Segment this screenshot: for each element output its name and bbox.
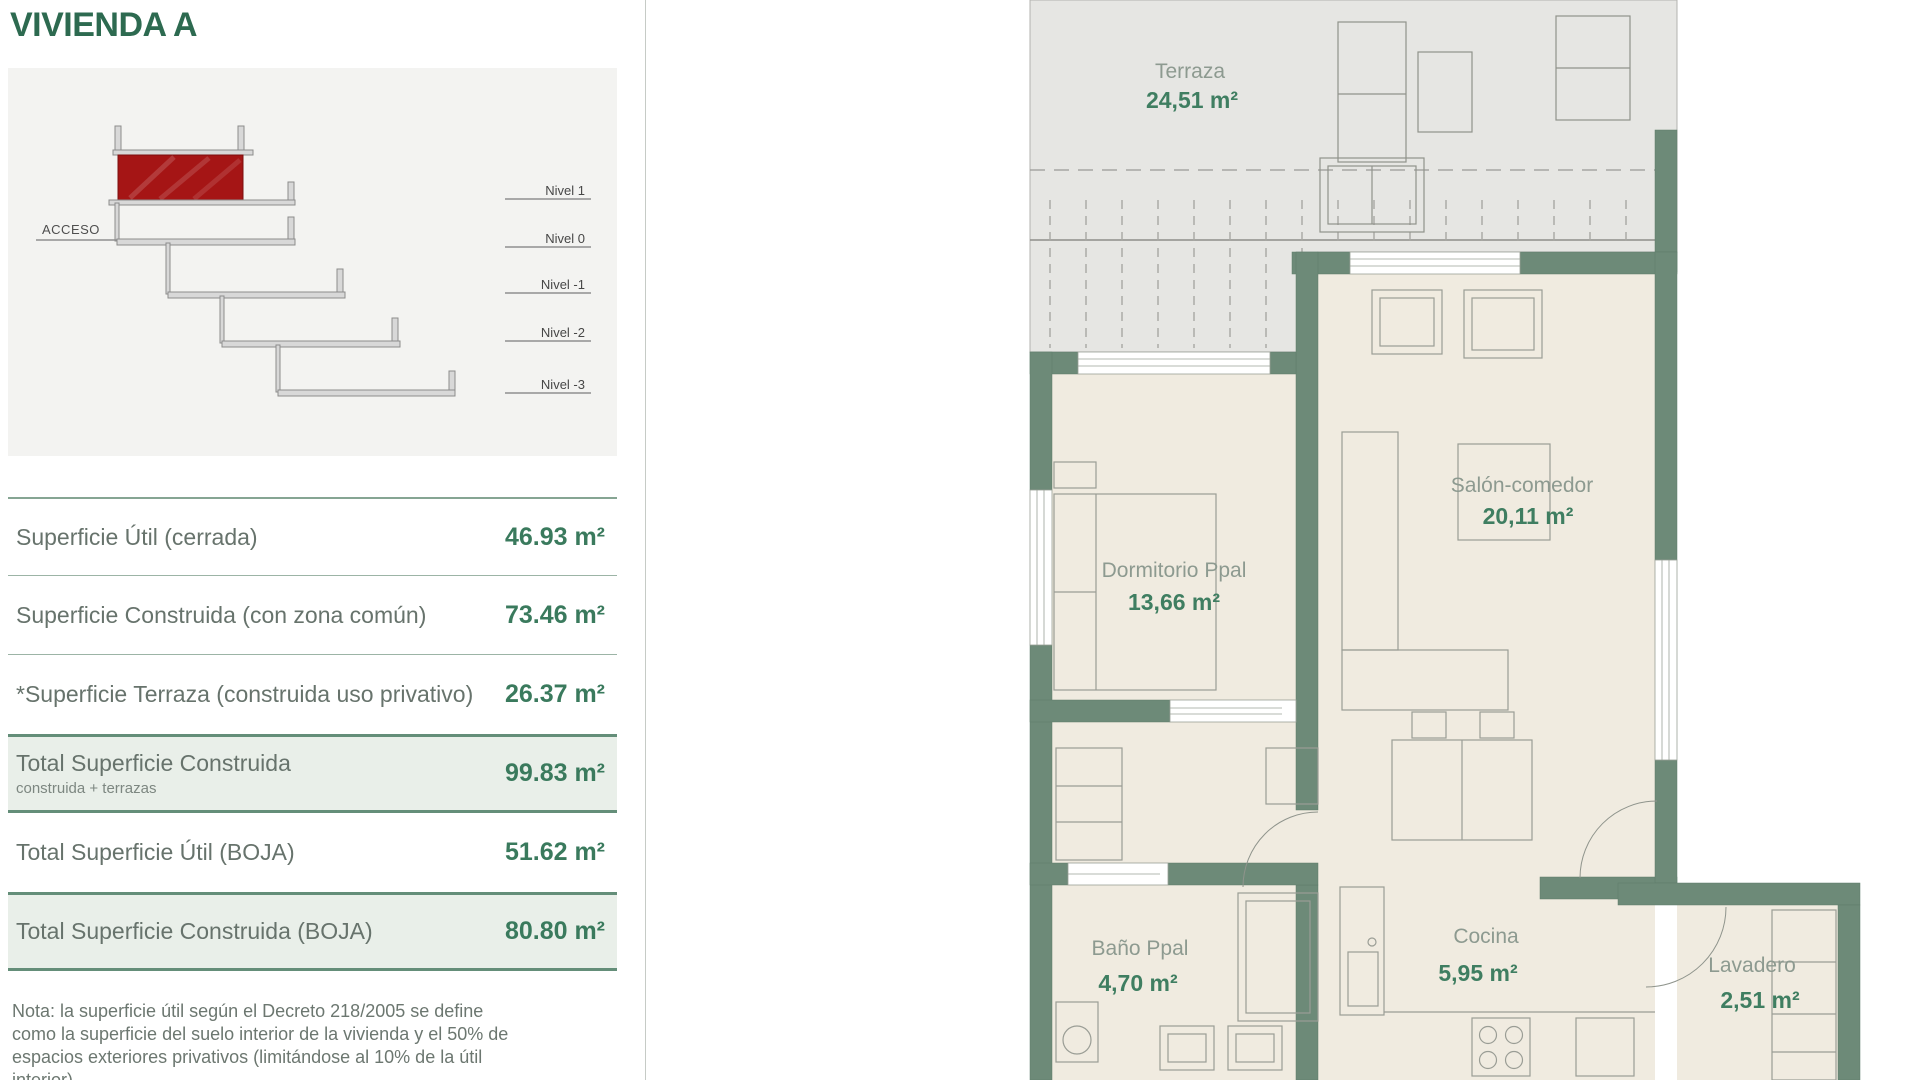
table-row: Total Superficie Útil (BOJA) 51.62 m²: [8, 813, 617, 892]
footnote: Nota: la superficie útil según el Decret…: [12, 1000, 517, 1080]
level-label-0: Nivel 0: [545, 231, 585, 246]
panel-divider: [645, 0, 646, 1080]
table-row-total: Total Superficie Construida construida +…: [8, 734, 617, 813]
info-panel: VIVIENDA A: [8, 0, 617, 1080]
table-row: Superficie Útil (cerrada) 46.93 m²: [8, 497, 617, 576]
section-diagram: ACCESO Nivel 1: [8, 68, 617, 456]
row-value: 80.80 m²: [505, 917, 605, 946]
room-area-cocina: 5,95 m²: [1438, 960, 1518, 986]
row-label: Total Superficie Útil (BOJA): [16, 839, 295, 866]
level-label-minus1: Nivel -1: [541, 277, 585, 292]
table-row: *Superficie Terraza (construida uso priv…: [8, 655, 617, 734]
room-label-terraza: Terraza: [1155, 60, 1225, 83]
row-label: Total Superficie Construida: [16, 750, 291, 777]
room-label-salon: Salón-comedor: [1451, 474, 1593, 497]
room-label-cocina: Cocina: [1453, 925, 1519, 948]
section-level-labels: Nivel 1 Nivel 0 Nivel -1 Nivel -2 Nivel …: [505, 183, 591, 393]
room-area-dormitorio: 13,66 m²: [1128, 589, 1220, 615]
section-level1-unit: [109, 126, 295, 205]
level-label-1: Nivel 1: [545, 183, 585, 198]
row-value: 99.83 m²: [505, 759, 605, 788]
page: VIVIENDA A: [0, 0, 1920, 1080]
section-acceso-level: ACCESO: [36, 203, 295, 245]
room-label-dormitorio: Dormitorio Ppal: [1102, 559, 1247, 582]
page-title: VIVIENDA A: [10, 6, 197, 45]
row-value: 46.93 m²: [505, 523, 605, 552]
table-row-total: Total Superficie Construida (BOJA) 80.80…: [8, 892, 617, 971]
room-area-salon: 20,11 m²: [1483, 503, 1574, 529]
room-area-bano: 4,70 m²: [1098, 970, 1178, 996]
acceso-label: ACCESO: [42, 222, 100, 237]
row-label: *Superficie Terraza (construida uso priv…: [16, 681, 473, 708]
table-row: Superficie Construida (con zona común) 7…: [8, 576, 617, 655]
row-value: 51.62 m²: [505, 838, 605, 867]
room-label-bano: Baño Ppal: [1092, 937, 1189, 960]
row-value: 73.46 m²: [505, 601, 605, 630]
level-label-minus2: Nivel -2: [541, 325, 585, 340]
section-lower-levels: [166, 243, 455, 396]
room-area-terraza: 24,51 m²: [1146, 87, 1238, 113]
section-diagram-svg: ACCESO Nivel 1: [8, 68, 617, 456]
room-area-lavadero: 2,51 m²: [1720, 987, 1800, 1013]
floor-plan: Terraza 24,51 m² Dormitorio Ppal 13,66 m…: [1020, 0, 1900, 1080]
row-value: 26.37 m²: [505, 680, 605, 709]
surface-table: Superficie Útil (cerrada) 46.93 m² Super…: [8, 497, 617, 971]
level-label-minus3: Nivel -3: [541, 377, 585, 392]
row-label: Superficie Construida (con zona común): [16, 602, 426, 629]
row-sublabel: construida + terrazas: [16, 780, 291, 797]
row-label: Total Superficie Construida (BOJA): [16, 918, 373, 945]
row-label: Superficie Útil (cerrada): [16, 524, 258, 551]
room-label-lavadero: Lavadero: [1708, 954, 1796, 977]
